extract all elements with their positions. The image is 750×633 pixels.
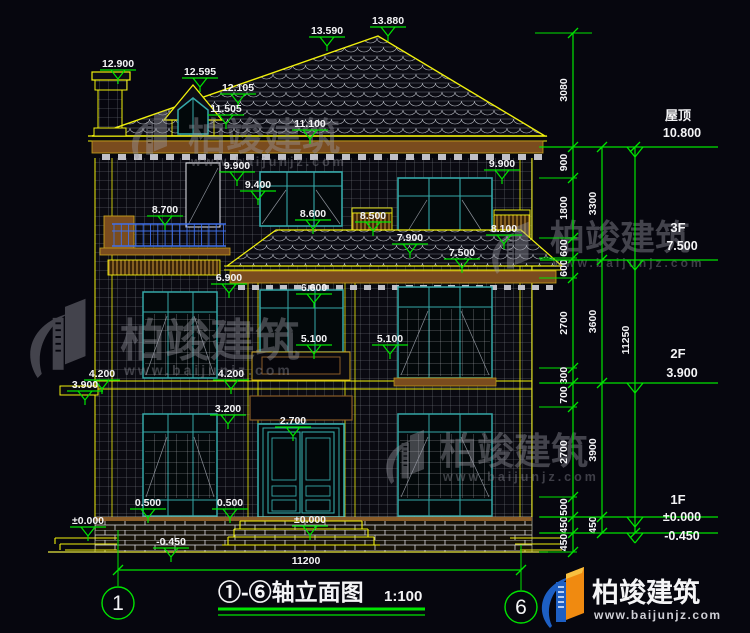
trim-slat-band xyxy=(108,260,220,275)
axis-number: 6 xyxy=(515,596,527,619)
floor-elevation: ±0.000 xyxy=(663,510,701,524)
level-text: ±0.000 xyxy=(294,514,326,526)
dimension-text: 300 xyxy=(558,367,570,385)
level-text: 11.100 xyxy=(294,118,326,130)
level-text: 12.595 xyxy=(184,66,216,78)
watermark-logo-icon xyxy=(30,299,85,378)
dimension-text: 450 xyxy=(558,516,570,534)
dimension-text: 600 xyxy=(558,259,570,277)
entry-door xyxy=(258,424,344,517)
watermark-site-text: www.baijunjz.com xyxy=(123,362,293,378)
dimension-text: 450 xyxy=(558,534,570,552)
axis-number: 1 xyxy=(112,592,124,615)
brand-logo-site: www.baijunjz.com xyxy=(593,608,722,622)
level-text: 8.700 xyxy=(152,204,178,216)
level-text: 9.400 xyxy=(245,179,271,191)
watermark-brand-text: 柏竣建筑 xyxy=(120,315,300,366)
dimension-text: 3080 xyxy=(558,78,570,102)
floor-level-marker: 屋顶10.800 xyxy=(540,108,718,157)
brand-logo-icon xyxy=(542,567,584,628)
level-annotation: 12.595 xyxy=(182,66,218,92)
dimension-text: 3300 xyxy=(587,192,599,216)
dimension-text: 3900 xyxy=(587,438,599,462)
overall-width-text: 11200 xyxy=(292,555,321,567)
level-text: 12.105 xyxy=(222,82,254,94)
level-text: 5.100 xyxy=(377,333,403,345)
elevation-drawing: 柏竣建筑 www.baijunjz.com 柏竣建筑 www.baijunjz.… xyxy=(0,0,750,633)
level-text: 6.600 xyxy=(301,282,327,294)
axis-bubble: 1 xyxy=(102,587,134,619)
level-text: 3.200 xyxy=(215,403,241,415)
floor-name: 屋顶 xyxy=(665,108,691,123)
window-sill xyxy=(394,378,496,386)
level-text: 9.900 xyxy=(489,158,515,170)
level-text: 7.900 xyxy=(397,232,423,244)
level-annotation: 13.590 xyxy=(309,25,345,51)
floor-name: 2F xyxy=(670,346,685,361)
level-text: 13.590 xyxy=(311,25,343,37)
dimension-text: 900 xyxy=(558,154,570,172)
watermark-site-text: www.baijunjz.com xyxy=(190,155,347,169)
drawing-scale: 1:100 xyxy=(384,588,422,605)
dimension-text: 600 xyxy=(558,239,570,257)
axis-bubble: 6 xyxy=(505,591,537,623)
level-text: -0.450 xyxy=(156,536,186,548)
dimension-text: 11250 xyxy=(620,326,632,355)
dimension-column: 11250 xyxy=(620,142,640,538)
level-text: 0.500 xyxy=(217,497,243,509)
level-text: 5.100 xyxy=(301,333,327,345)
balcony-slab xyxy=(100,248,230,255)
dimension-text: 700 xyxy=(558,386,570,404)
title-block: ①-⑥轴立面图 1:100 xyxy=(218,579,425,615)
level-text: 12.900 xyxy=(102,58,134,70)
dimension-text: 450 xyxy=(587,516,599,534)
dimension-text: 2700 xyxy=(558,311,570,335)
balcony-pillar xyxy=(104,216,134,250)
brand-logo-text: 柏竣建筑 xyxy=(592,577,700,608)
level-text: 2.700 xyxy=(280,415,306,427)
watermark-site-text: www.baijunjz.com xyxy=(442,470,599,484)
level-text: 11.505 xyxy=(210,103,242,115)
floor-name: 1F xyxy=(670,492,685,507)
level-text: 7.500 xyxy=(449,247,475,259)
level-text: 3.900 xyxy=(72,379,98,391)
level-text: 6.900 xyxy=(216,272,242,284)
level-text: 8.500 xyxy=(360,210,386,222)
level-text: 13.880 xyxy=(372,15,404,27)
level-text: ±0.000 xyxy=(72,515,104,527)
drawing-title: ①-⑥轴立面图 xyxy=(218,579,364,605)
level-text: 8.600 xyxy=(300,208,326,220)
floor-elevation: 3.900 xyxy=(666,366,697,380)
dimension-text: 500 xyxy=(558,498,570,516)
window-3f-left xyxy=(186,163,220,227)
level-text: 8.100 xyxy=(491,223,517,235)
dimension-text: 3600 xyxy=(587,310,599,334)
floor-name: 3F xyxy=(670,220,685,235)
window-2f-right xyxy=(394,287,496,386)
floor-elevation: -0.450 xyxy=(664,529,699,543)
floor-elevation: 10.800 xyxy=(663,126,701,140)
floor-elevation: 7.500 xyxy=(666,239,697,253)
level-text: 4.200 xyxy=(218,368,244,380)
level-text: 9.900 xyxy=(224,160,250,172)
dimension-text: 2700 xyxy=(558,440,570,464)
dimension-text: 1800 xyxy=(558,196,570,220)
level-text: 0.500 xyxy=(135,497,161,509)
brand-logo: 柏竣建筑 www.baijunjz.com xyxy=(542,567,722,628)
cad-drawing-canvas: 柏竣建筑 www.baijunjz.com 柏竣建筑 www.baijunjz.… xyxy=(0,0,750,633)
